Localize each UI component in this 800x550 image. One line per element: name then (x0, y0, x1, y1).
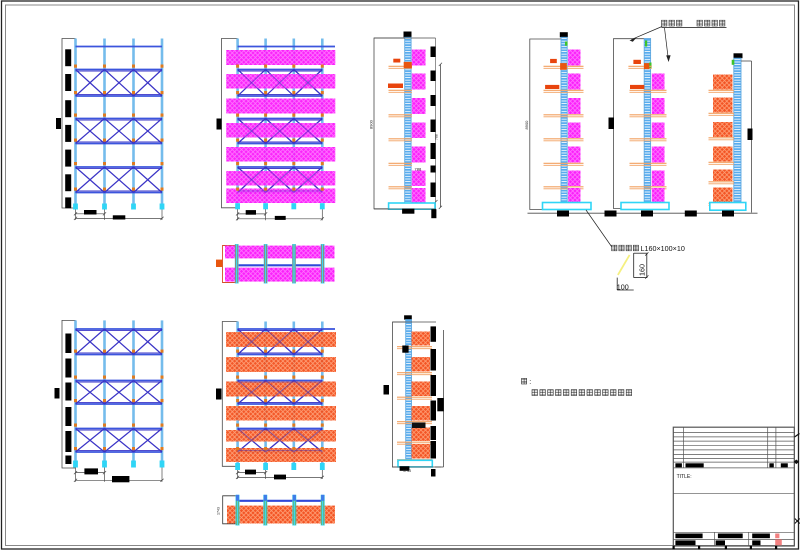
svg-text:788: 788 (435, 134, 439, 140)
svg-text:1743: 1743 (403, 469, 411, 473)
svg-text:8900: 8900 (369, 119, 374, 129)
svg-text:100: 100 (617, 283, 629, 292)
svg-text:160: 160 (637, 264, 646, 276)
svg-text:788: 788 (415, 167, 422, 172)
svg-text:8900: 8900 (524, 120, 529, 130)
svg-text:TITLE:: TITLE: (677, 474, 692, 480)
svg-text::: : (529, 379, 531, 386)
svg-text:1743: 1743 (217, 507, 221, 515)
svg-text:L160×100×10: L160×100×10 (641, 244, 685, 253)
